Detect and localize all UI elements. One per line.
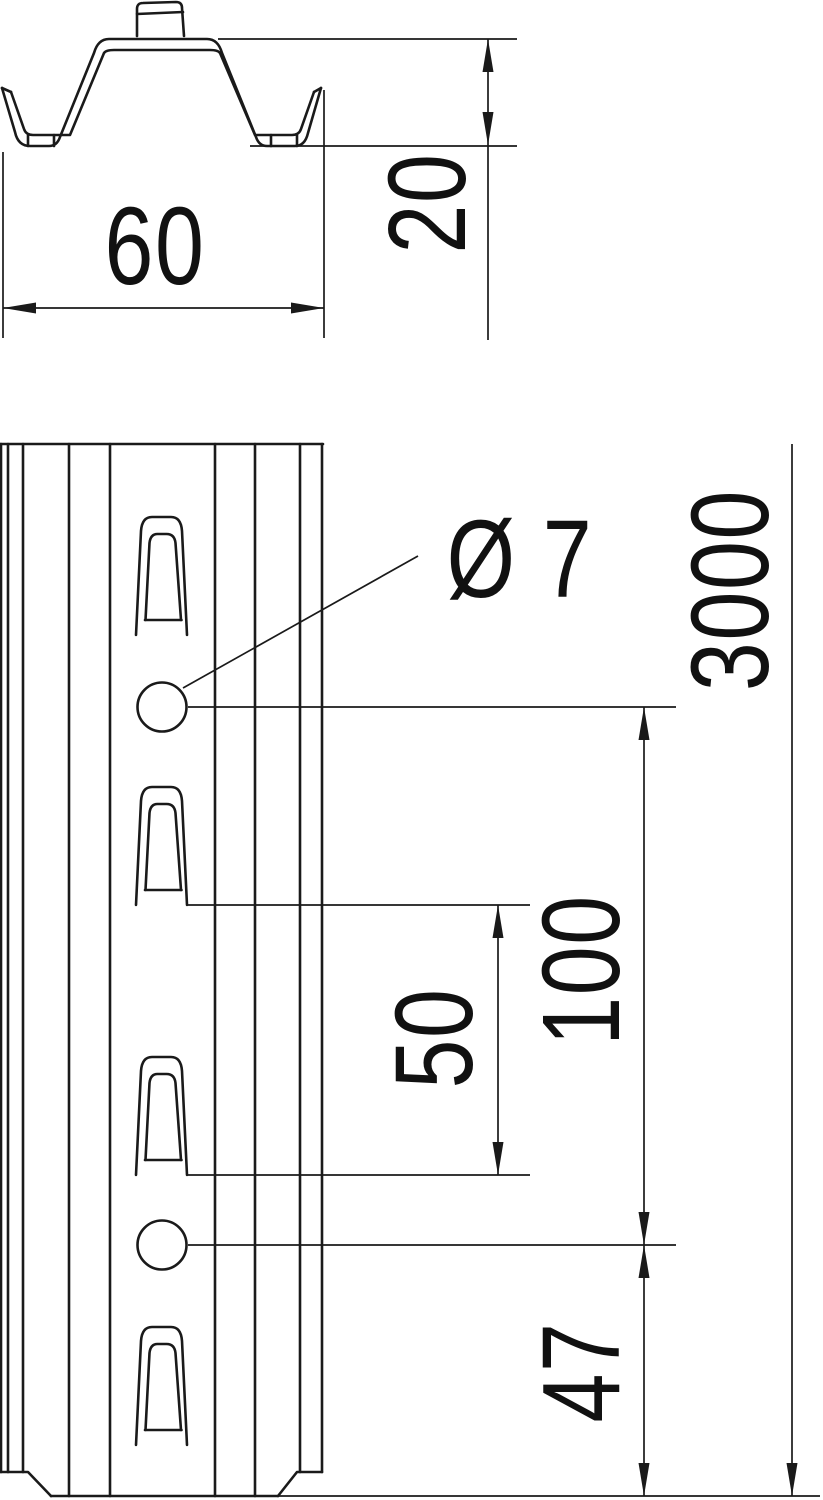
dim-label-hole-diameter: Ø 7	[447, 499, 594, 622]
cross-section-view	[2, 2, 321, 146]
technical-drawing-page: 60 20	[0, 0, 823, 1500]
arrowhead-down	[483, 112, 494, 145]
hole-2	[138, 1221, 187, 1270]
drawing-canvas: 60 20	[0, 0, 823, 1500]
dimension-end-distance-47: 47	[521, 1245, 650, 1496]
dim-label-width: 60	[104, 186, 205, 309]
arrowhead-left	[3, 303, 36, 314]
dim-label-slot-pitch: 50	[374, 987, 497, 1088]
slot-3	[136, 1057, 187, 1175]
dim-label-end-distance: 47	[521, 1321, 644, 1422]
dimension-slot-pitch-50: 50	[187, 905, 530, 1175]
dim-label-height: 20	[367, 152, 490, 253]
arrowhead-up	[483, 39, 494, 72]
arrowhead-up	[639, 1245, 650, 1278]
dimension-total-length-3000: 3000	[51, 444, 820, 1496]
dim-label-total-length: 3000	[670, 489, 793, 691]
arrowhead-down	[639, 1212, 650, 1245]
arrowhead-down	[787, 1463, 798, 1496]
arrowhead-down	[639, 1463, 650, 1496]
dimension-height-20: 20	[218, 39, 517, 340]
slot-4	[136, 1327, 187, 1445]
dimension-hole-diameter: Ø 7	[183, 499, 593, 688]
front-view	[0, 444, 323, 1496]
slot-1	[136, 517, 187, 635]
profile-outer-contour	[2, 39, 321, 146]
hole-1	[138, 683, 187, 732]
dim-label-hole-pitch: 100	[521, 894, 644, 1046]
rail-bend-lines	[1, 444, 322, 1496]
rail-bottom-end	[0, 1472, 322, 1496]
arrowhead-up	[493, 905, 504, 938]
profile-top-tab	[137, 2, 184, 36]
slot-2	[136, 787, 187, 905]
dimension-width-60: 60	[3, 90, 324, 338]
arrowhead-up	[639, 707, 650, 740]
dimension-hole-pitch-100: 100	[521, 707, 650, 1245]
arrowhead-down	[493, 1142, 504, 1175]
profile-inner-contour	[11, 50, 314, 135]
arrowhead-right	[291, 303, 324, 314]
